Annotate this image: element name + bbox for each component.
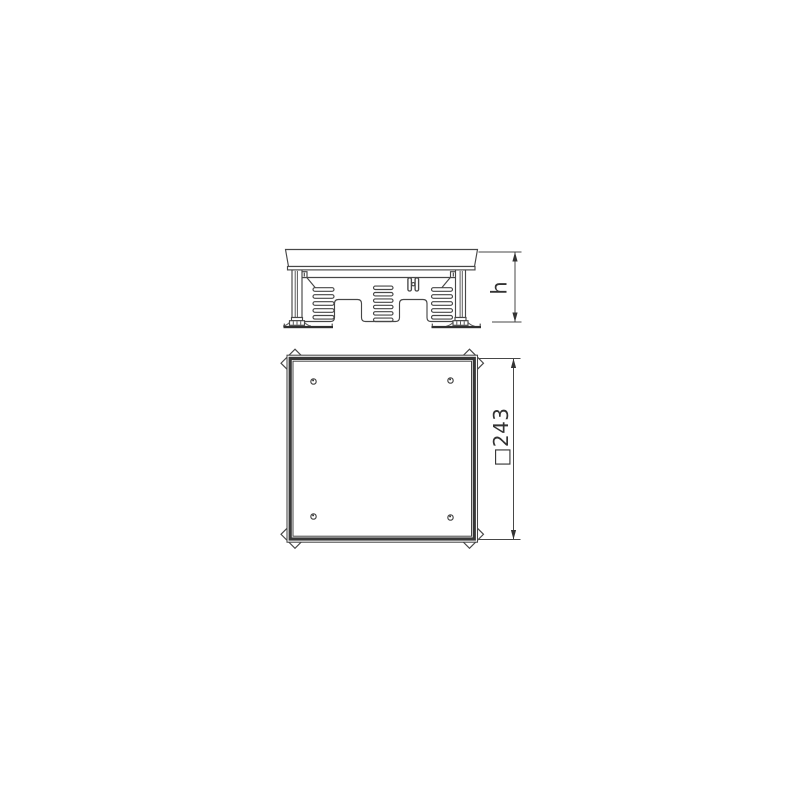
vent-slot — [313, 302, 334, 306]
arrowhead-down — [512, 313, 517, 323]
side-elevation-view — [283, 250, 481, 329]
left-leveling-leg — [292, 270, 302, 318]
floor-box-technical-drawing: h — [0, 0, 800, 800]
foot-base-plate — [432, 326, 482, 328]
vent-slot — [313, 295, 334, 299]
clamp-screw — [412, 283, 415, 286]
foot-skirt — [305, 323, 312, 327]
foot-skirt — [468, 323, 475, 327]
vent-slot — [313, 316, 334, 320]
bracket-diagonal — [442, 278, 450, 288]
clamp-bar — [415, 278, 419, 291]
vent-slot — [432, 316, 453, 320]
vent-slots-middle — [374, 286, 394, 321]
vent-slot — [432, 309, 453, 313]
technical-drawing-page: h — [0, 0, 800, 800]
vent-slot — [432, 288, 453, 292]
vent-slot — [374, 299, 394, 302]
vent-slots-left — [313, 288, 334, 319]
vent-slot — [313, 309, 334, 313]
vent-slot — [374, 312, 394, 315]
left-corner-bracket — [302, 272, 316, 288]
vent-slot — [374, 305, 394, 308]
vent-slot — [374, 293, 394, 296]
vent-slot — [313, 288, 334, 292]
clamp-bar — [408, 278, 412, 291]
center-clamp-detail — [408, 278, 419, 291]
height-dimension: h — [479, 252, 522, 322]
arrowhead-up — [511, 359, 516, 369]
arrowhead-down — [511, 530, 516, 540]
square-dimension: □243 — [479, 359, 521, 540]
foot-skirt — [447, 323, 454, 327]
vent-slot — [432, 295, 453, 299]
vent-slot — [374, 318, 394, 321]
right-leveling-leg — [456, 270, 466, 318]
vent-slots-right — [432, 288, 453, 319]
cover-lid — [286, 250, 478, 267]
right-corner-bracket — [442, 272, 456, 288]
frame-inner-edge — [293, 361, 472, 536]
height-dimension-label: h — [488, 281, 512, 294]
foot-base-plate — [284, 326, 334, 328]
bracket-diagonal — [307, 278, 315, 288]
square-dimension-label: □243 — [489, 407, 513, 466]
vent-slot — [374, 286, 394, 289]
arrowhead-up — [512, 252, 517, 262]
vent-slot — [432, 302, 453, 306]
top-plan-view — [281, 349, 484, 548]
cover-lid-lip — [288, 267, 476, 270]
